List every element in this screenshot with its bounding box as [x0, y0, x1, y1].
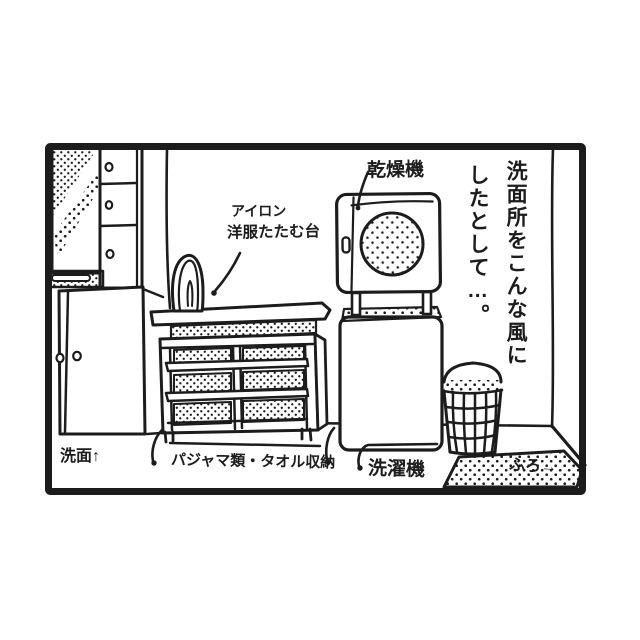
drawer-knob: [106, 163, 113, 171]
cabinet-knob: [57, 354, 64, 362]
label-iron-line1: アイロン: [231, 204, 286, 218]
label-washroom: 洗面↑: [60, 449, 100, 465]
dryer-door: [361, 213, 424, 276]
shelf-cubby: [174, 373, 231, 393]
laundry-basket: [443, 363, 502, 454]
storage-shelf: [160, 334, 327, 446]
iron: [173, 255, 204, 311]
comic-page: 洗面所をこんな風に したとして…。 乾燥機 アイロン 洋服たたむ台 洗面↑ パジ…: [0, 0, 640, 640]
room-illustration: [0, 0, 640, 640]
mirror: [52, 148, 100, 273]
label-iron-line2: 洋服たたむ台: [227, 224, 320, 241]
washing-machine: [340, 307, 442, 450]
drawer-knob: [106, 201, 112, 209]
sink-ledge: [48, 271, 103, 287]
label-dryer: 乾燥機: [367, 161, 424, 181]
drawer-knob: [107, 250, 114, 258]
label-storage: パジャマ類・タオル収納: [171, 453, 336, 471]
dryer: [337, 193, 441, 292]
label-bath-mat: ふろ→: [509, 458, 558, 476]
iron-pointer-line: [215, 253, 240, 291]
caption-line-2: したとして…。: [466, 164, 489, 339]
wall-corner-right: [552, 149, 553, 427]
shelf-cubby: [243, 370, 304, 390]
cabinet: [57, 287, 164, 434]
label-washer: 洗濯機: [368, 459, 425, 479]
dryer-handle: [342, 237, 349, 252]
cabinet-knob: [73, 352, 81, 360]
caption-line-1: 洗面所をこんな風に: [504, 160, 527, 375]
wall-corner-left: [167, 149, 170, 308]
drawer-unit: [100, 148, 142, 288]
